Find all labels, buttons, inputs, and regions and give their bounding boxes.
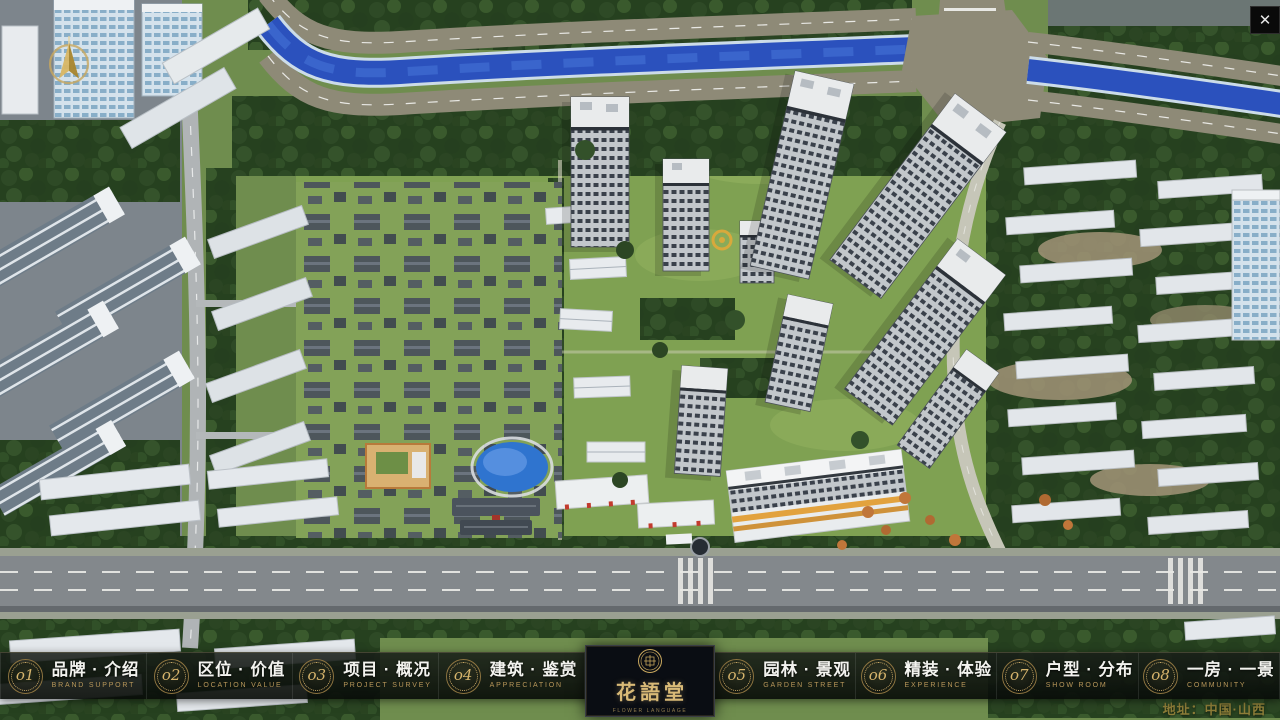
nav-item-label: 建筑 · 鉴赏 — [490, 662, 578, 679]
number-badge: o3 — [299, 659, 334, 694]
close-button[interactable]: ✕ — [1250, 6, 1280, 34]
close-icon: ✕ — [1259, 13, 1272, 28]
badge-number: o7 — [1010, 666, 1029, 684]
nav-item-label: 精装 · 体验 — [905, 662, 993, 679]
nav-item-label: 品牌 · 介绍 — [52, 662, 140, 679]
logo-subtitle: FLOWER LANGUAGE — [613, 708, 688, 714]
nav-group-right: o5 园林 · 景观GARDEN STREET o6 精装 · 体验EXPERI… — [715, 653, 1280, 699]
nav-item-project[interactable]: o3 项目 · 概况PROJECT SURVEY — [293, 653, 439, 699]
number-badge: o6 — [861, 659, 896, 694]
nav-item-interior[interactable]: o6 精装 · 体验EXPERIENCE — [856, 653, 997, 699]
nav-item-sublabel: BRAND SUPPORT — [52, 682, 136, 689]
number-badge: o5 — [719, 659, 754, 694]
number-badge: o7 — [1002, 659, 1037, 694]
number-badge: o1 — [8, 659, 43, 694]
nav-item-architecture[interactable]: o4 建筑 · 鉴赏APPRECIATION — [439, 653, 585, 699]
logo-title: 花語堂 — [612, 676, 688, 705]
badge-number: o8 — [1151, 666, 1170, 684]
number-badge: o8 — [1143, 659, 1178, 694]
nav-item-label: 区位 · 价值 — [198, 662, 286, 679]
nav-item-garden[interactable]: o5 园林 · 景观GARDEN STREET — [715, 653, 856, 699]
logo-panel: 花語堂 FLOWER LANGUAGE — [585, 645, 715, 717]
villa-quarter — [296, 182, 562, 538]
nav-item-sublabel: COMMUNITY — [1187, 682, 1246, 689]
number-badge: o4 — [446, 659, 481, 694]
address-text: 地址：中国·山西 — [1163, 699, 1266, 718]
nav-item-rooms[interactable]: o8 一房 · 一景COMMUNITY — [1139, 653, 1280, 699]
nav-item-label: 一房 · 一景 — [1187, 662, 1275, 679]
nav-item-label: 园林 · 景观 — [763, 662, 851, 679]
badge-number: o6 — [869, 666, 888, 684]
nav-item-location[interactable]: o2 区位 · 价值LOCATION VALUE — [147, 653, 293, 699]
nav-item-label: 项目 · 概况 — [343, 662, 431, 679]
nav-item-sublabel: GARDEN STREET — [763, 682, 846, 689]
nav-group-left: o1 品牌 · 介绍BRAND SUPPORT o2 区位 · 价值LOCATI… — [0, 653, 585, 699]
main-road — [0, 548, 1280, 619]
badge-number: o5 — [727, 666, 746, 684]
aerial-rendering — [0, 0, 1280, 720]
badge-number: o1 — [16, 666, 35, 684]
compass-icon — [40, 34, 98, 96]
nav-item-sublabel: SHOW ROOM — [1046, 682, 1108, 689]
nav-item-sublabel: LOCATION VALUE — [198, 682, 283, 689]
nav-item-sublabel: EXPERIENCE — [905, 682, 968, 689]
number-badge: o2 — [154, 659, 189, 694]
nav-item-label: 户型 · 分布 — [1046, 662, 1134, 679]
badge-number: o2 — [162, 666, 181, 684]
bottom-navbar: o1 品牌 · 介绍BRAND SUPPORT o2 区位 · 价值LOCATI… — [0, 652, 1280, 699]
nav-item-sublabel: PROJECT SURVEY — [343, 682, 431, 689]
nav-item-sublabel: APPRECIATION — [490, 682, 563, 689]
badge-number: o4 — [454, 666, 473, 684]
badge-number: o3 — [308, 666, 327, 684]
nav-item-floorplan[interactable]: o7 户型 · 分布SHOW ROOM — [997, 653, 1138, 699]
seal-emblem-icon — [637, 648, 663, 674]
nav-item-brand[interactable]: o1 品牌 · 介绍BRAND SUPPORT — [0, 653, 147, 699]
